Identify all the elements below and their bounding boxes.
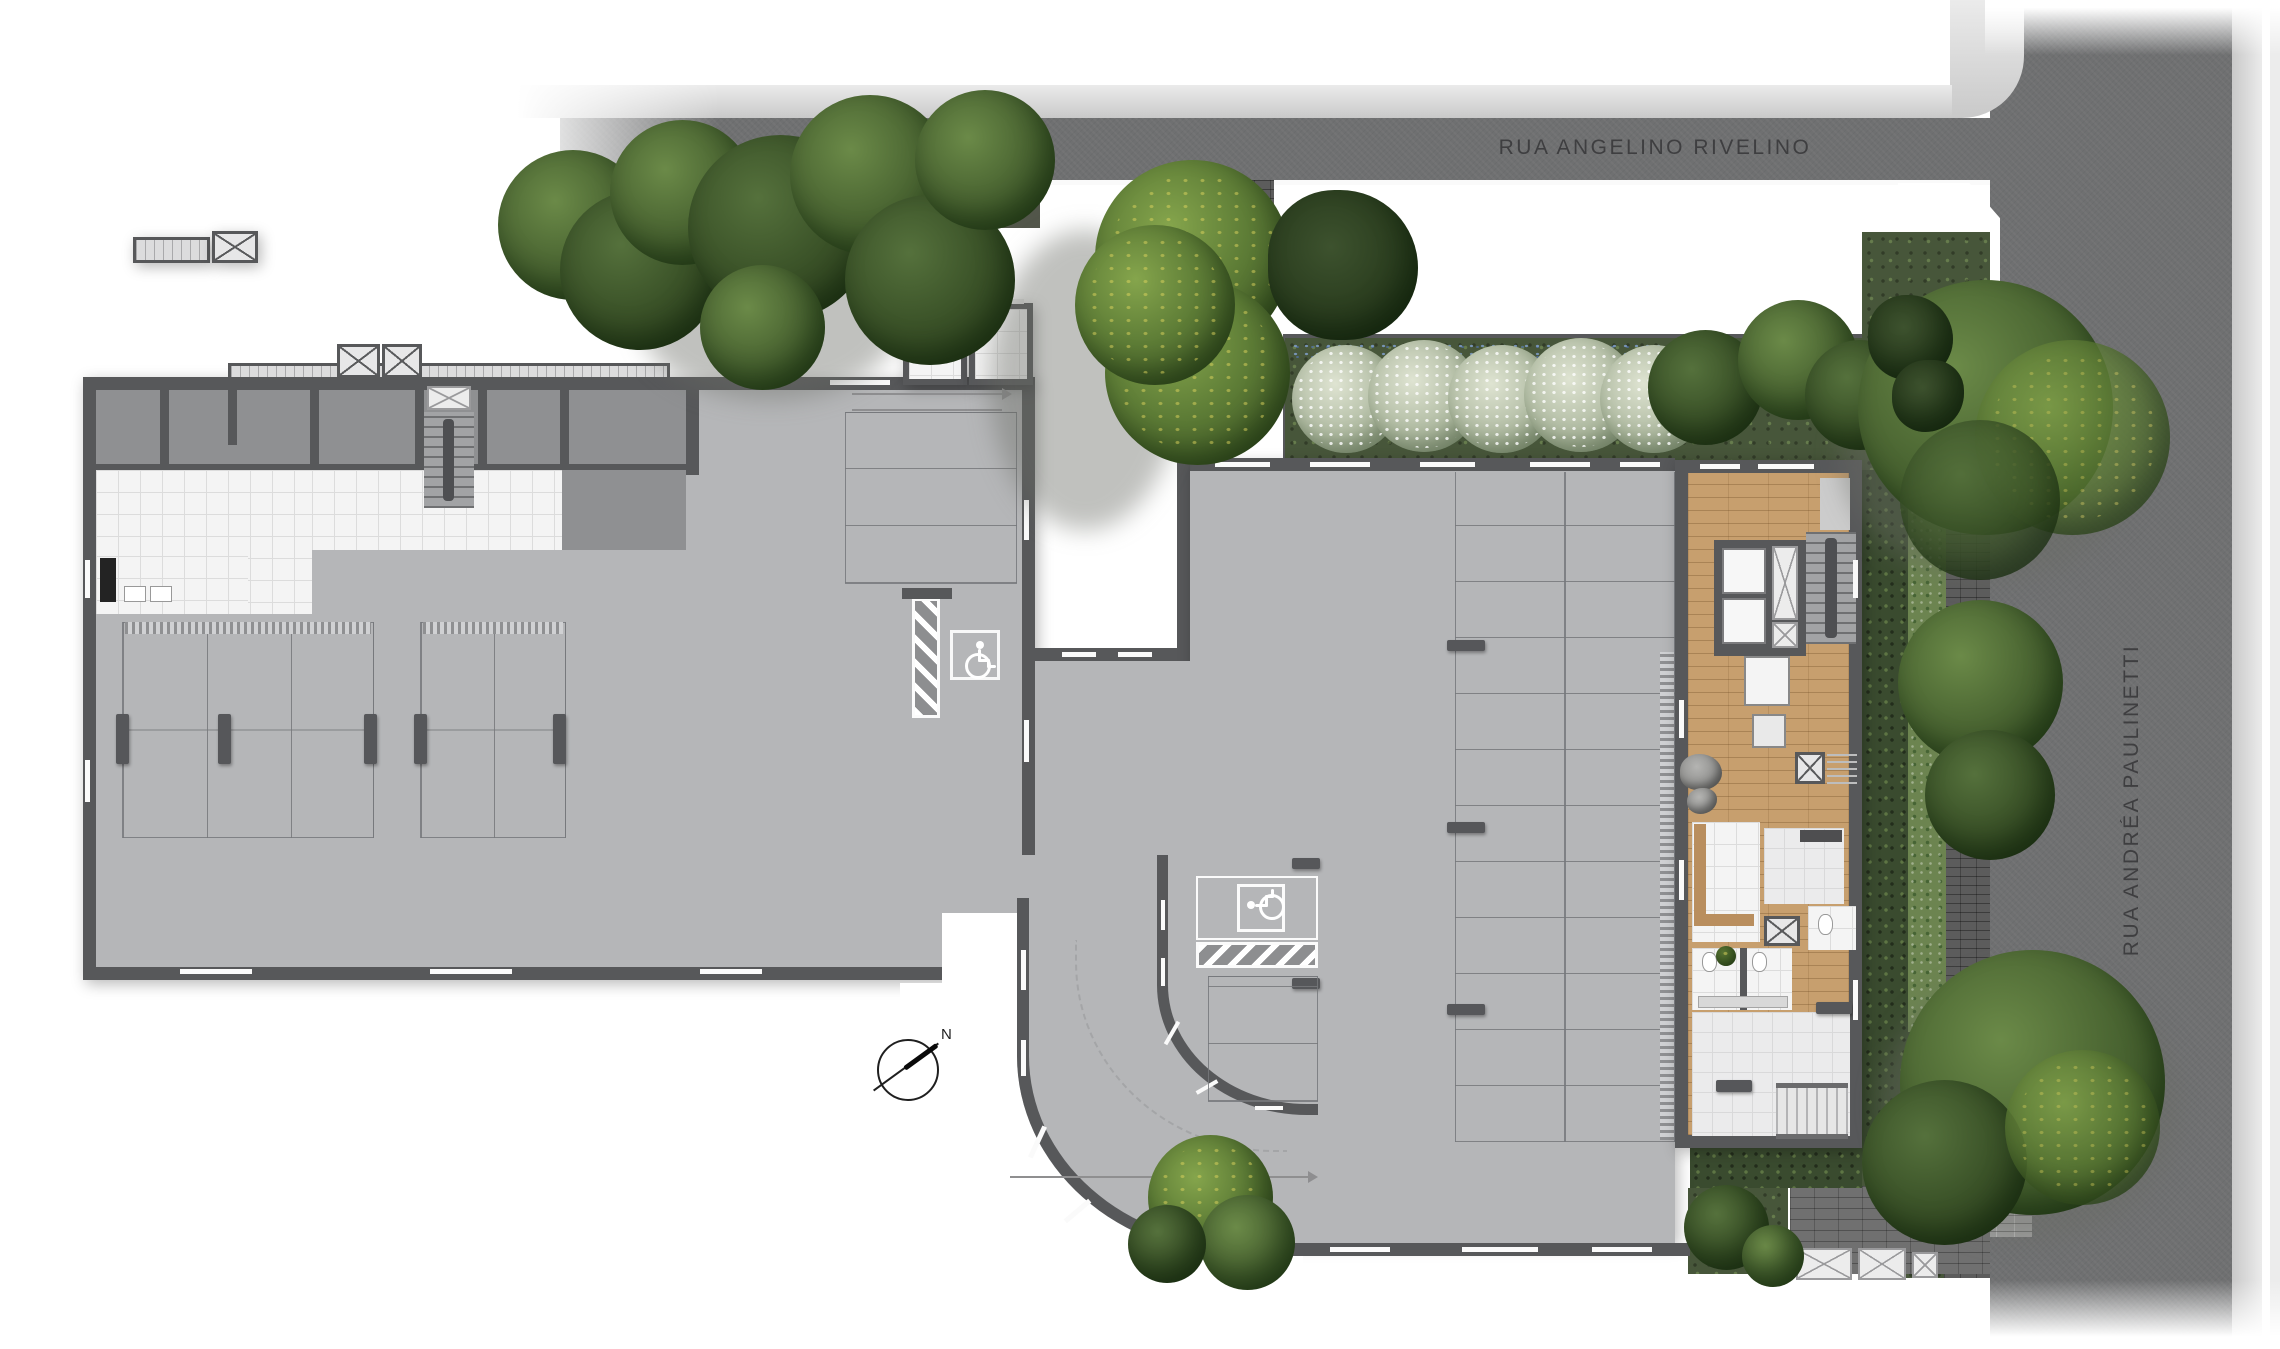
ramp-line <box>852 393 1002 395</box>
unit-band <box>96 390 692 470</box>
wall-segment <box>560 390 569 470</box>
site-plan: RUA ANGELINO RIVELINO RUA ANDRÉA PAULINE… <box>0 0 2280 1349</box>
column-stub <box>414 714 427 764</box>
palm-canopy <box>1268 190 1418 340</box>
parking-column <box>1565 472 1675 1142</box>
skylight-icon <box>427 386 471 410</box>
parking-group-b <box>420 622 566 838</box>
tree-canopy <box>2005 1050 2160 1205</box>
column-stub <box>218 714 231 764</box>
tree-canopy <box>700 265 825 390</box>
wall-segment <box>686 377 699 475</box>
curb-dash <box>1161 958 1165 986</box>
wall-vent <box>1853 980 1858 1020</box>
tree-canopy <box>1862 1080 2027 1245</box>
street-name-right: RUA ANDRÉA PAULINETTI <box>2120 600 2146 1000</box>
vault-xbox <box>212 231 258 263</box>
wall-vent <box>1679 860 1684 900</box>
no-parking-hatch <box>912 598 940 718</box>
curb-dash <box>1064 1199 1092 1223</box>
fixture <box>124 586 146 602</box>
vault-box <box>133 237 210 263</box>
stair-rail <box>1776 1083 1848 1088</box>
column-stub <box>1292 858 1320 869</box>
sidewalk-right <box>2232 0 2262 1349</box>
toilet-fixture <box>1818 914 1833 935</box>
wall-vent <box>1310 462 1370 467</box>
tree-canopy-large <box>1075 225 1235 385</box>
toilet-fixture <box>1702 952 1717 972</box>
wall-vent <box>1215 462 1270 467</box>
bush <box>1742 1225 1804 1287</box>
wall-vent <box>700 969 762 974</box>
curb-dash <box>1255 1106 1283 1110</box>
bench <box>1694 824 1706 926</box>
shaft-icon <box>1772 622 1798 648</box>
wall-vent <box>1420 462 1475 467</box>
wall-vent <box>1462 1247 1538 1252</box>
parking-row-ne <box>845 412 1017 584</box>
unit-pocket <box>562 470 686 550</box>
wall-segment <box>228 383 237 445</box>
toilet-fixture <box>1752 952 1767 972</box>
vent-bar <box>228 363 670 380</box>
wall-vent <box>1620 462 1660 467</box>
hatch-cap <box>902 588 952 599</box>
garden-stair <box>1776 1088 1848 1134</box>
drain-grate <box>125 622 371 634</box>
column-stub <box>1447 640 1485 651</box>
tree-canopy <box>1128 1205 1206 1283</box>
tree-canopy <box>915 90 1055 230</box>
wall-vent <box>1592 1247 1652 1252</box>
courtyard-wall-south <box>1035 648 1190 661</box>
wall-vent <box>1758 464 1814 469</box>
accessible-sign-box <box>950 630 1000 680</box>
counter-fixture <box>100 558 116 602</box>
north-label: N <box>941 1026 952 1043</box>
skylight-icon <box>1912 1252 1938 1278</box>
street-name-top: RUA ANGELINO RIVELINO <box>1400 136 1910 160</box>
wall-vent <box>1853 560 1858 598</box>
parking-column <box>1455 472 1565 1142</box>
bench <box>1694 914 1754 926</box>
column-stub <box>1816 1002 1852 1014</box>
ramp-line <box>852 409 1002 411</box>
wall-vent <box>1024 500 1029 540</box>
accessible-hatch <box>1196 942 1318 968</box>
wall-vent <box>180 969 252 974</box>
potted-plant <box>1716 946 1736 966</box>
parking-spots <box>1208 976 1318 1102</box>
curb-dash <box>1021 1040 1026 1076</box>
wall-segment <box>310 390 319 470</box>
column-stub <box>553 714 566 764</box>
tree-canopy-corner <box>1900 420 2060 580</box>
wall-vent <box>85 560 90 598</box>
drain-grate <box>423 622 563 634</box>
column-stub <box>364 714 377 764</box>
drain-grate-vertical <box>1660 652 1674 1140</box>
wheelchair-icon <box>1242 889 1282 929</box>
parking-group-a <box>122 622 374 838</box>
tree-canopy <box>1200 1195 1295 1290</box>
counter-fixture <box>1800 830 1842 842</box>
drive-arrow-icon <box>1308 1171 1318 1183</box>
wall-vent <box>1024 720 1029 762</box>
vent-lines <box>1827 752 1857 784</box>
wall-vent <box>1700 464 1740 469</box>
column-stub <box>1716 1080 1752 1092</box>
elevator-shaft-icon <box>337 344 380 378</box>
curb-dash <box>1161 900 1165 930</box>
shaft-icon <box>1764 916 1800 946</box>
street-fade-bottom-right <box>1930 1280 2280 1349</box>
wall-vent <box>1118 652 1152 657</box>
service-lift <box>1744 656 1790 706</box>
street-fade-top-right <box>1985 0 2280 55</box>
stair-rail <box>1776 1134 1848 1139</box>
tree-canopy <box>1925 730 2055 860</box>
stair-rail <box>443 419 454 501</box>
elevator-cab <box>1722 548 1766 594</box>
elevator-shaft-icon <box>382 344 422 378</box>
skylight-icon <box>1796 1248 1852 1280</box>
column-stub <box>116 714 129 764</box>
landscape-boulder <box>1680 754 1722 790</box>
wall-vent <box>1062 652 1096 657</box>
column-stub <box>1447 822 1485 833</box>
wall-vent <box>1530 462 1590 467</box>
stair-rail <box>1825 538 1837 638</box>
courtyard-wall-east <box>1177 455 1190 661</box>
wall-segment <box>160 390 169 470</box>
column-stub <box>1447 1004 1485 1015</box>
sink-counter <box>1698 996 1788 1008</box>
wheelchair-icon <box>956 636 996 676</box>
elevator-cab <box>1722 598 1766 644</box>
fixture <box>150 586 172 602</box>
wall-vent <box>1330 1247 1390 1252</box>
service-tiles <box>96 556 248 612</box>
sidewalk-right-edge <box>2270 0 2280 1349</box>
dumbwaiter <box>1752 714 1786 748</box>
elevator-shaft-icon <box>1772 546 1798 620</box>
wall-vent <box>85 760 90 802</box>
shaft-icon <box>1795 752 1825 784</box>
accessible-sign-box <box>1237 884 1285 932</box>
wall-vent <box>1679 700 1684 738</box>
wall-vent <box>430 969 512 974</box>
curb-dash <box>1021 950 1026 990</box>
skylight-icon <box>1858 1248 1906 1280</box>
hedge-building-south <box>1690 1148 1862 1188</box>
